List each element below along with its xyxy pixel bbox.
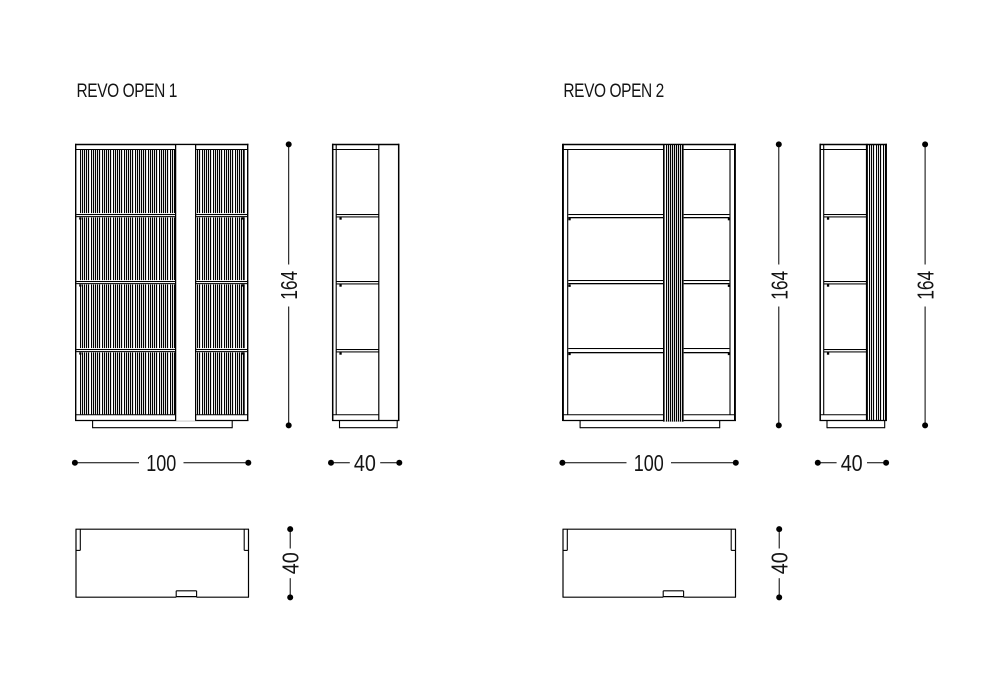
svg-text:REVO OPEN 1: REVO OPEN 1 <box>77 81 178 102</box>
svg-text:REVO OPEN 2: REVO OPEN 2 <box>563 81 664 102</box>
svg-text:164: 164 <box>913 271 939 300</box>
svg-text:40: 40 <box>767 552 793 574</box>
svg-text:164: 164 <box>276 271 302 300</box>
svg-text:40: 40 <box>841 450 863 476</box>
svg-text:100: 100 <box>146 450 176 476</box>
svg-text:164: 164 <box>766 271 792 300</box>
svg-text:40: 40 <box>354 450 376 476</box>
svg-text:40: 40 <box>278 552 304 574</box>
svg-text:100: 100 <box>634 450 664 476</box>
